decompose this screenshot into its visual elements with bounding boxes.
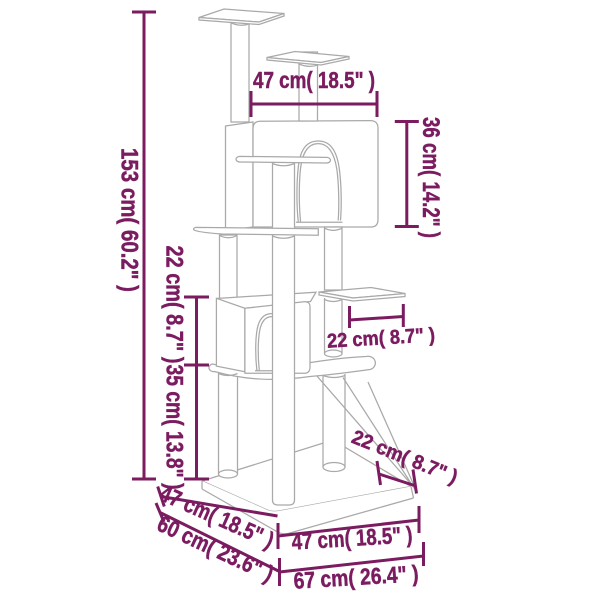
svg-text:35 cm( 13.8" ): 35 cm( 13.8" ) — [161, 365, 188, 490]
svg-text:22 cm( 8.7" ): 22 cm( 8.7" ) — [161, 246, 188, 364]
svg-text:36 cm( 14.2" ): 36 cm( 14.2" ) — [417, 117, 444, 238]
svg-text:47 cm( 18.5" ): 47 cm( 18.5" ) — [253, 67, 375, 93]
svg-text:153 cm( 60.2" ): 153 cm( 60.2" ) — [116, 148, 143, 292]
